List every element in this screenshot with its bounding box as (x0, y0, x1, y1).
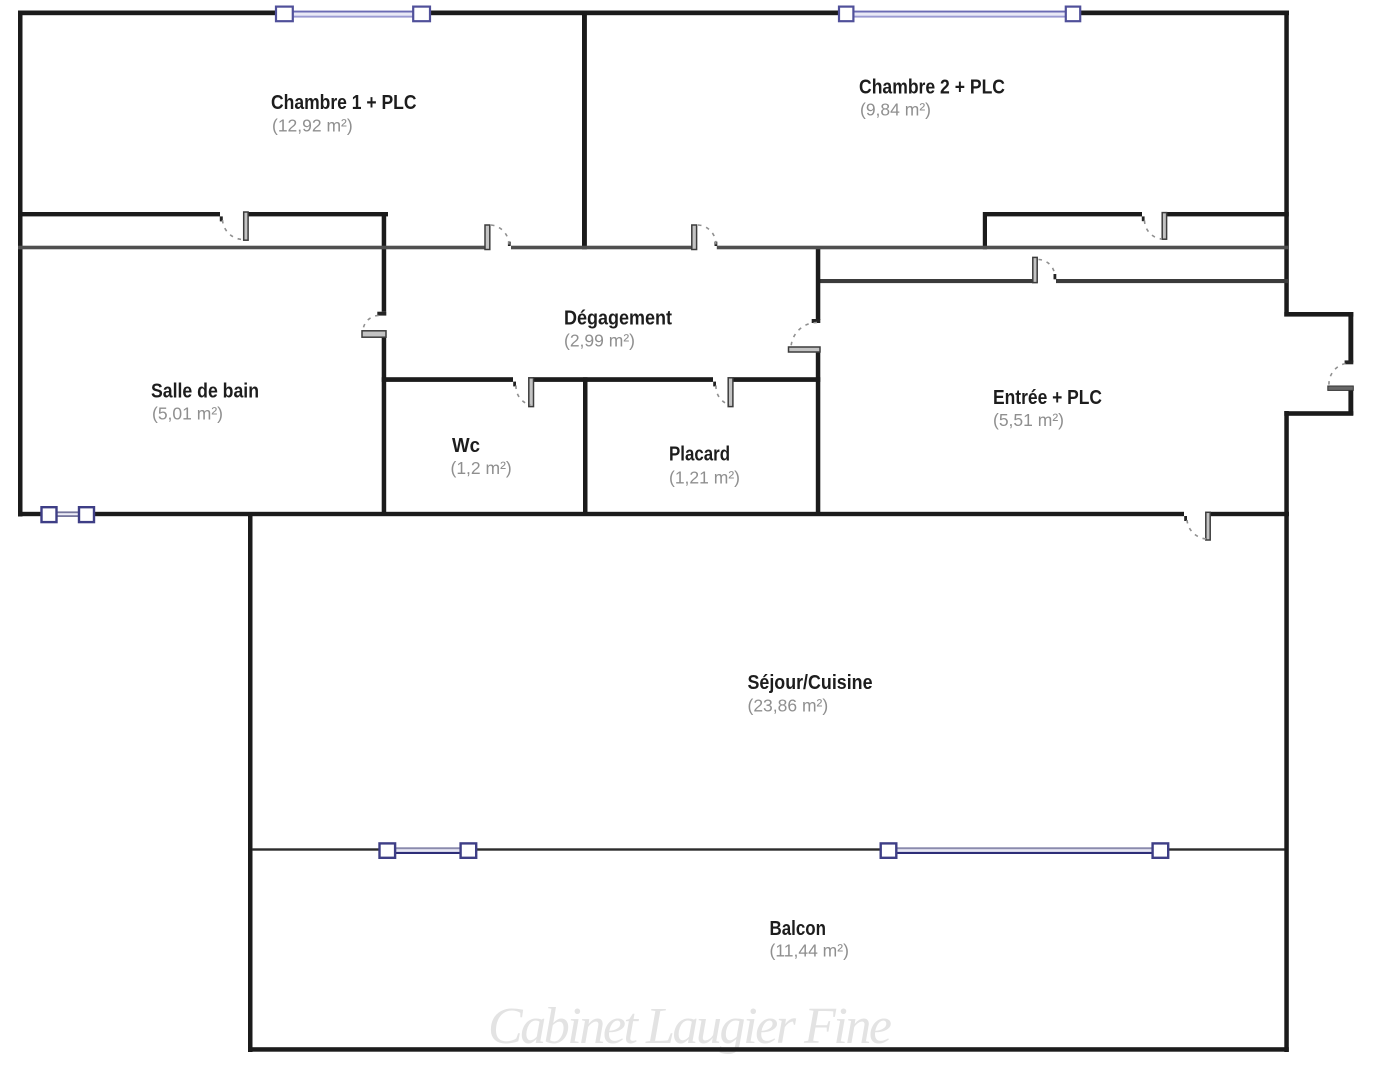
svg-text:Cabinet Laugier Fine: Cabinet Laugier Fine (488, 998, 892, 1055)
svg-text:(9,84 m²): (9,84 m²) (860, 100, 931, 120)
svg-text:(1,21 m²): (1,21 m²) (669, 468, 740, 488)
svg-text:(5,01 m²): (5,01 m²) (152, 404, 223, 424)
svg-text:Entrée + PLC: Entrée + PLC (993, 387, 1102, 409)
svg-text:Séjour/Cuisine: Séjour/Cuisine (748, 672, 873, 694)
svg-text:Placard: Placard (669, 444, 730, 466)
svg-text:(12,92 m²): (12,92 m²) (272, 116, 353, 136)
svg-text:Balcon: Balcon (770, 918, 827, 940)
svg-text:Chambre 1 + PLC: Chambre 1 + PLC (271, 92, 417, 114)
svg-text:Chambre 2 + PLC: Chambre 2 + PLC (859, 77, 1005, 99)
svg-text:(2,99 m²): (2,99 m²) (564, 331, 635, 351)
svg-text:Wc: Wc (452, 435, 480, 457)
svg-text:(5,51 m²): (5,51 m²) (993, 410, 1064, 430)
svg-text:Salle de bain: Salle de bain (151, 381, 259, 403)
svg-text:(23,86 m²): (23,86 m²) (748, 696, 829, 716)
svg-text:Dégagement: Dégagement (564, 308, 672, 330)
svg-text:(1,2 m²): (1,2 m²) (451, 458, 512, 478)
svg-text:(11,44 m²): (11,44 m²) (770, 941, 849, 961)
